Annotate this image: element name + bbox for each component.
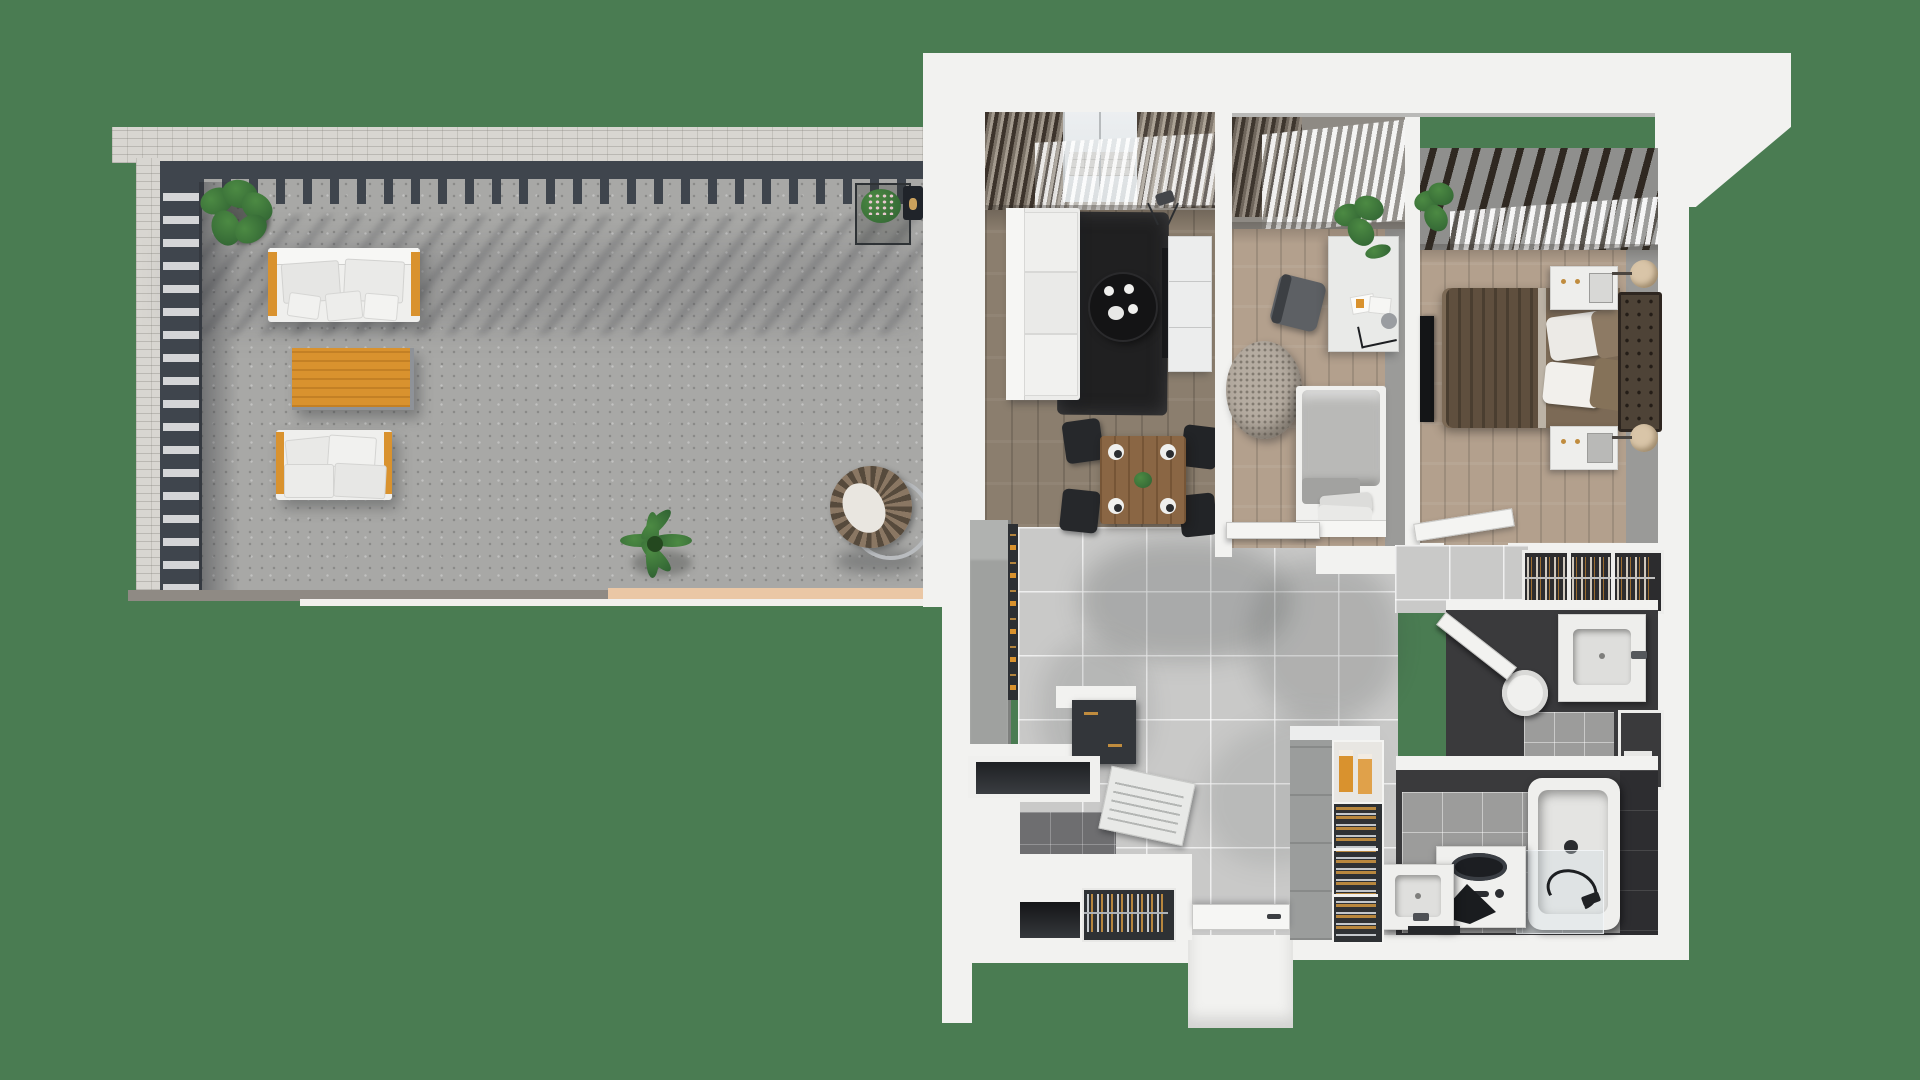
wc-floor xyxy=(1524,712,1614,756)
south-counter-niche xyxy=(1020,902,1080,938)
master-tv-panel xyxy=(1420,316,1434,422)
paper-photo xyxy=(1356,299,1364,308)
kitchen-niche xyxy=(976,762,1090,794)
drawer-knob xyxy=(1575,279,1580,284)
sofa-cushion xyxy=(1024,212,1078,272)
wc-faucet xyxy=(1631,651,1647,659)
apartment xyxy=(0,0,1920,1080)
nightstand xyxy=(1550,426,1618,470)
monstera-plant xyxy=(1334,194,1386,248)
bed-duvet xyxy=(1302,390,1380,486)
wall-lamp-stem xyxy=(1612,272,1632,275)
rack-divider xyxy=(1334,894,1378,897)
entrance-stoop xyxy=(1188,928,1293,1028)
sofa-cushion xyxy=(1024,272,1078,334)
kitchen-tall-cabinet xyxy=(970,520,1011,750)
wc-open-door xyxy=(1436,612,1517,680)
knife-rail xyxy=(1084,912,1168,914)
nightstand xyxy=(1550,266,1618,310)
sofa-back xyxy=(1006,208,1025,400)
bed-sheet-fold xyxy=(1538,288,1546,428)
dining-table xyxy=(1100,436,1186,524)
entrance-door xyxy=(1192,904,1290,930)
living-window-band xyxy=(985,112,1215,210)
mug xyxy=(1166,504,1174,512)
drawer-knob xyxy=(1561,279,1566,284)
desk-lamp-head xyxy=(1381,313,1397,329)
console-shelf-line xyxy=(1169,281,1211,282)
wc-drain xyxy=(1599,653,1605,659)
lamp-leg xyxy=(1147,203,1159,226)
lamp-leg xyxy=(1167,203,1179,226)
bathroom xyxy=(1396,770,1658,935)
lamp-head xyxy=(1155,190,1176,207)
dining-chair xyxy=(1061,418,1104,465)
washer-knob xyxy=(1495,889,1504,898)
hall-shadow-blob xyxy=(1250,560,1400,720)
sofa-cushion xyxy=(1024,334,1078,396)
single-bed xyxy=(1296,386,1386,536)
pantry-cutaway xyxy=(1332,740,1384,806)
closet-divider xyxy=(1567,553,1571,605)
closet-hangers xyxy=(1527,557,1653,601)
vanity-faucet xyxy=(1413,913,1429,921)
wall-bedroom2-master xyxy=(1405,117,1420,545)
rack-divider xyxy=(1334,848,1378,851)
mug xyxy=(1114,450,1122,458)
tufted-headboard xyxy=(1618,292,1662,432)
bedroom2-bottom-wall xyxy=(1316,546,1405,574)
washer-drum-lid xyxy=(1451,853,1507,881)
round-coffee-table xyxy=(1090,274,1156,340)
sheer-curtain xyxy=(1035,133,1215,210)
bath-mat xyxy=(1408,926,1460,934)
teapot xyxy=(1108,306,1124,320)
marble-pouf xyxy=(1226,341,1302,439)
cabinet-handle xyxy=(1108,744,1122,747)
closet-rail xyxy=(1525,577,1655,579)
master-window-shadow xyxy=(1420,244,1658,264)
wall-lamp-stem xyxy=(1612,436,1632,439)
tv-console xyxy=(1168,236,1212,372)
table-plant xyxy=(1134,472,1152,488)
drawer-knob xyxy=(1561,439,1566,444)
wc-vanity xyxy=(1558,614,1646,702)
tea-cup xyxy=(1128,304,1138,314)
door-handle xyxy=(1267,914,1281,919)
cereal-box xyxy=(1339,750,1353,792)
dishwasher-racks xyxy=(1107,776,1185,834)
bed-throw xyxy=(1446,288,1538,428)
tea-cup xyxy=(1124,284,1134,294)
mug xyxy=(1114,504,1122,512)
vanity-drain xyxy=(1415,893,1421,899)
tea-cup xyxy=(1104,286,1114,296)
kitchen-base-cabinets xyxy=(1072,700,1136,764)
dining-chair xyxy=(1059,488,1101,534)
bathroom-dark-tile-wall xyxy=(1620,770,1658,935)
living-sofa xyxy=(1006,208,1080,400)
kitchen-left-apron xyxy=(942,798,1020,963)
wine-unit xyxy=(1290,726,1380,940)
wall-living-bedroom2 xyxy=(1215,110,1232,557)
cereal-box xyxy=(1358,754,1372,794)
wall-lamp xyxy=(1630,424,1658,452)
kitchen-niche-frame xyxy=(968,756,1100,802)
bathroom-vanity xyxy=(1382,864,1454,930)
double-bed xyxy=(1442,286,1656,430)
nightstand-frame xyxy=(1587,433,1613,463)
floor-plan-render xyxy=(0,0,1920,1080)
nightstand-frame xyxy=(1589,273,1613,303)
closet-divider xyxy=(1611,553,1615,605)
pantry-items xyxy=(1010,530,1016,690)
bedroom2-open-door xyxy=(1226,522,1320,539)
wine-racks xyxy=(1332,802,1384,944)
tripod-lamp xyxy=(1148,190,1180,228)
desk xyxy=(1328,236,1399,352)
mug xyxy=(1166,450,1174,458)
wine-bottles xyxy=(1336,806,1376,936)
master-plant xyxy=(1414,183,1458,233)
wall-lamp xyxy=(1630,260,1658,288)
wine-unit-gray-panel xyxy=(1290,740,1332,940)
cabinet-handle xyxy=(1084,712,1098,715)
drawer-knob xyxy=(1575,439,1580,444)
console-shelf-line xyxy=(1169,327,1211,328)
kitchen-pantry-sliver xyxy=(1008,524,1018,700)
knife-drawer xyxy=(1082,888,1176,942)
